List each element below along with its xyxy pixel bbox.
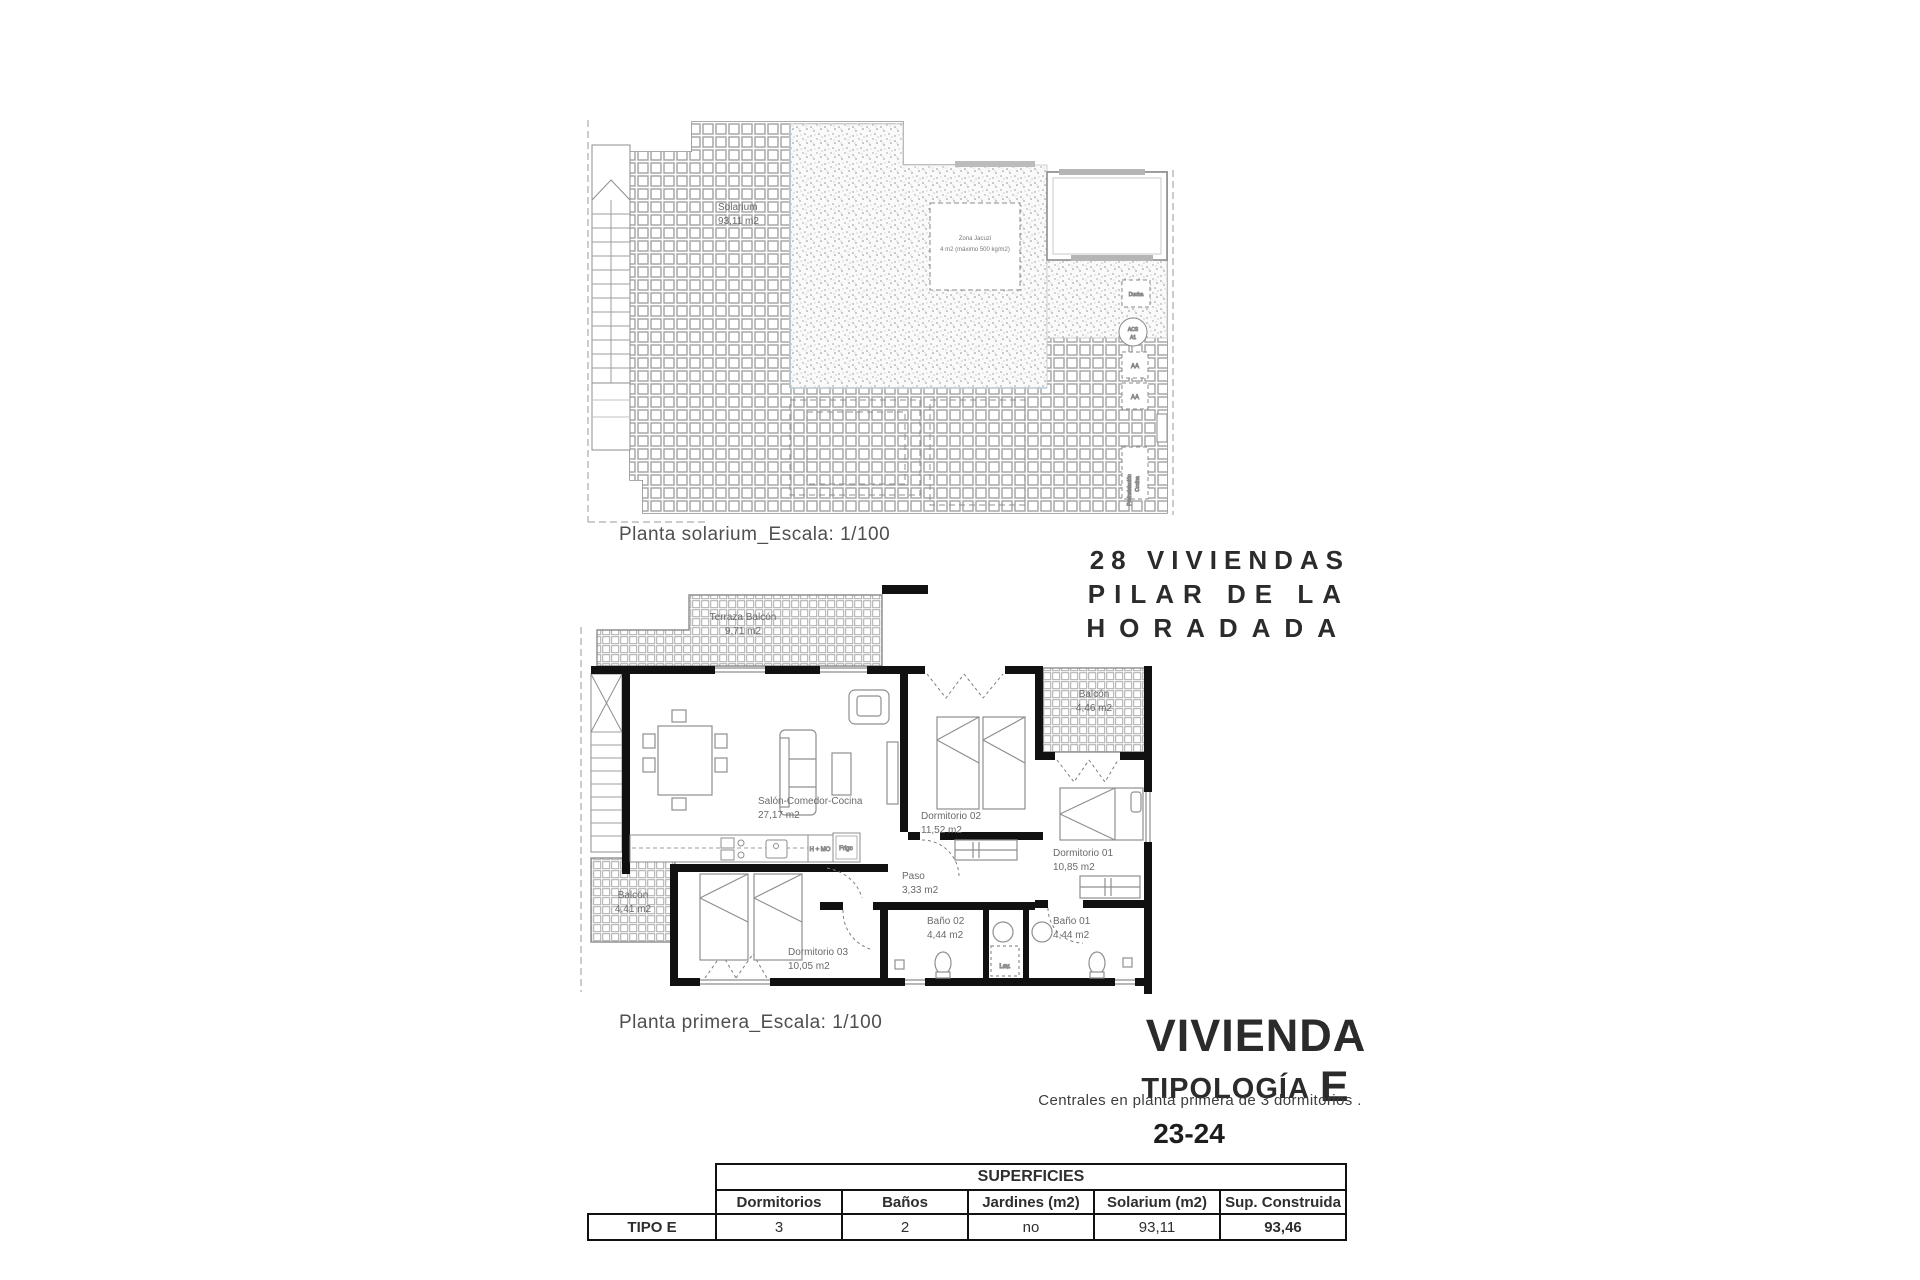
jacuzzi-zone: Zona Jacuzi 4 m2 (máximo 500 kg/m2) xyxy=(930,203,1020,290)
table-group-header: SUPERFICIES xyxy=(717,1165,1345,1189)
superficies-table: SUPERFICIES Dormitorios Baños Jardines (… xyxy=(715,1163,1347,1241)
dorm1-furniture xyxy=(1060,788,1143,898)
toilet xyxy=(935,952,951,974)
washer-niche xyxy=(991,946,1019,976)
chair xyxy=(672,798,686,810)
balcon-left-area: 4,41 m2 xyxy=(615,904,652,915)
window-bar-top xyxy=(1059,169,1145,175)
typology-description: Centrales en planta primera de 3 dormito… xyxy=(1038,1092,1362,1109)
jacuzzi-label: Zona Jacuzi xyxy=(959,236,991,242)
chair xyxy=(715,758,727,772)
balcon-left-label: Balcón xyxy=(618,890,649,901)
column-header-sup-construida: Sup. Construida xyxy=(1221,1191,1345,1213)
dorm1-area: 10,85 m2 xyxy=(1053,862,1095,873)
solarium-caption: Planta solarium_Escala: 1/100 xyxy=(619,524,890,546)
tv-unit xyxy=(887,742,898,804)
dorm1-label: Dormitorio 01 xyxy=(1053,848,1113,859)
toilet-tank xyxy=(1090,972,1104,978)
stairs xyxy=(591,666,622,852)
tipo-e-cell: TIPO E xyxy=(587,1213,717,1241)
solarium-floor-plan: Zona Jacuzi 4 m2 (máximo 500 kg/m2) D xyxy=(585,110,1180,535)
value-solarium: 93,11 xyxy=(1095,1215,1219,1239)
column-header-solarium: Solarium (m2) xyxy=(1095,1191,1219,1213)
door-leaf xyxy=(1157,414,1167,442)
balcony-left: Balcón 4,41 m2 xyxy=(591,858,675,942)
balcon-right-label: Balcón xyxy=(1079,689,1110,700)
balcony-right: Balcón 4,46 m2 xyxy=(1043,668,1146,752)
chair xyxy=(672,710,686,722)
bano2-area: 4,44 m2 xyxy=(927,930,964,941)
aa-bottom-label: AA xyxy=(1131,395,1139,401)
salon-area: 27,17 m2 xyxy=(758,810,800,821)
column-header-dormitorios: Dormitorios xyxy=(717,1191,841,1213)
jacuzzi-note: 4 m2 (máximo 500 kg/m2) xyxy=(940,247,1010,253)
preinstalacion-label: Preinstalación xyxy=(1127,474,1133,506)
paso-label: Paso xyxy=(902,871,925,882)
dorm3-label: Dormitorio 03 xyxy=(788,947,848,958)
bano1-area: 4,44 m2 xyxy=(1053,930,1090,941)
typology-title: VIVIENDA xyxy=(1146,1010,1367,1062)
faucet xyxy=(738,840,744,846)
balcon-right-area: 4,46 m2 xyxy=(1076,703,1113,714)
stairs xyxy=(592,145,630,450)
kitchen-hmo-label: H + MO xyxy=(810,847,831,853)
pillow xyxy=(1131,792,1141,812)
chair xyxy=(715,734,727,748)
lav-label: Lav. xyxy=(1000,964,1011,970)
toilet xyxy=(1089,952,1105,974)
paso-area: 3,33 m2 xyxy=(902,885,939,896)
value-banos: 2 xyxy=(843,1215,967,1239)
plan-sheet: Zona Jacuzi 4 m2 (máximo 500 kg/m2) D xyxy=(0,0,1920,1280)
dining-table xyxy=(658,726,712,795)
drain xyxy=(895,960,904,969)
chair xyxy=(643,734,655,748)
first-floor-caption: Planta primera_Escala: 1/100 xyxy=(619,1012,882,1034)
solarium-area: 93,11 m2 xyxy=(718,216,759,227)
washbasin xyxy=(1032,922,1052,942)
aa-top-label: AA xyxy=(1131,364,1139,370)
wall-stub xyxy=(882,585,928,594)
dorm3-beds xyxy=(700,874,802,960)
terraza-area: 9,71 m2 xyxy=(725,626,762,637)
toilet-tank xyxy=(936,972,950,978)
coffee-table xyxy=(832,753,851,795)
value-jardines: no xyxy=(969,1215,1093,1239)
stairhead-room xyxy=(1047,169,1167,261)
project-title-line1: 28 VIVIENDAS xyxy=(1086,543,1350,577)
value-dormitorios: 3 xyxy=(717,1215,841,1239)
acs-label: ACS xyxy=(1128,327,1139,333)
terrace: Terraza Balcón 9,71 m2 xyxy=(597,585,928,666)
a1-label: A1 xyxy=(1130,335,1136,341)
solarium-label: Solarium xyxy=(718,202,757,213)
kitchen: H + MO Frigo xyxy=(630,833,860,862)
cocina-label: Cocina xyxy=(1135,476,1141,492)
window-bar-jacuzzi xyxy=(955,161,1035,167)
window-bar-bottom xyxy=(1071,255,1153,261)
hob xyxy=(766,840,787,858)
bano1-label: Baño 01 xyxy=(1053,916,1091,927)
sink-bowl xyxy=(721,850,734,860)
drain xyxy=(1123,958,1132,967)
column-header-banos: Baños xyxy=(843,1191,967,1213)
typology-units: 23-24 xyxy=(1153,1118,1225,1150)
terraza-label: Terraza Balcón xyxy=(710,612,777,623)
chair xyxy=(643,758,655,772)
salon-label: Salón-Comedor-Cocina xyxy=(758,796,863,807)
bano2-label: Baño 02 xyxy=(927,916,965,927)
first-floor-plan: Terraza Balcón 9,71 m2 Balcón 4,46 m2 Ba… xyxy=(575,582,1165,1002)
column-header-jardines: Jardines (m2) xyxy=(969,1191,1093,1213)
ducha-label: Ducha xyxy=(1129,292,1144,298)
frigo-label: Frigo xyxy=(839,846,853,852)
washbasin xyxy=(993,922,1013,942)
dorm2-area: 11,52 m2 xyxy=(921,825,962,836)
sink-bowl xyxy=(721,838,734,848)
dorm2-label: Dormitorio 02 xyxy=(921,811,981,822)
dorm3-area: 10,05 m2 xyxy=(788,961,830,972)
value-sup-construida: 93,46 xyxy=(1221,1215,1345,1239)
